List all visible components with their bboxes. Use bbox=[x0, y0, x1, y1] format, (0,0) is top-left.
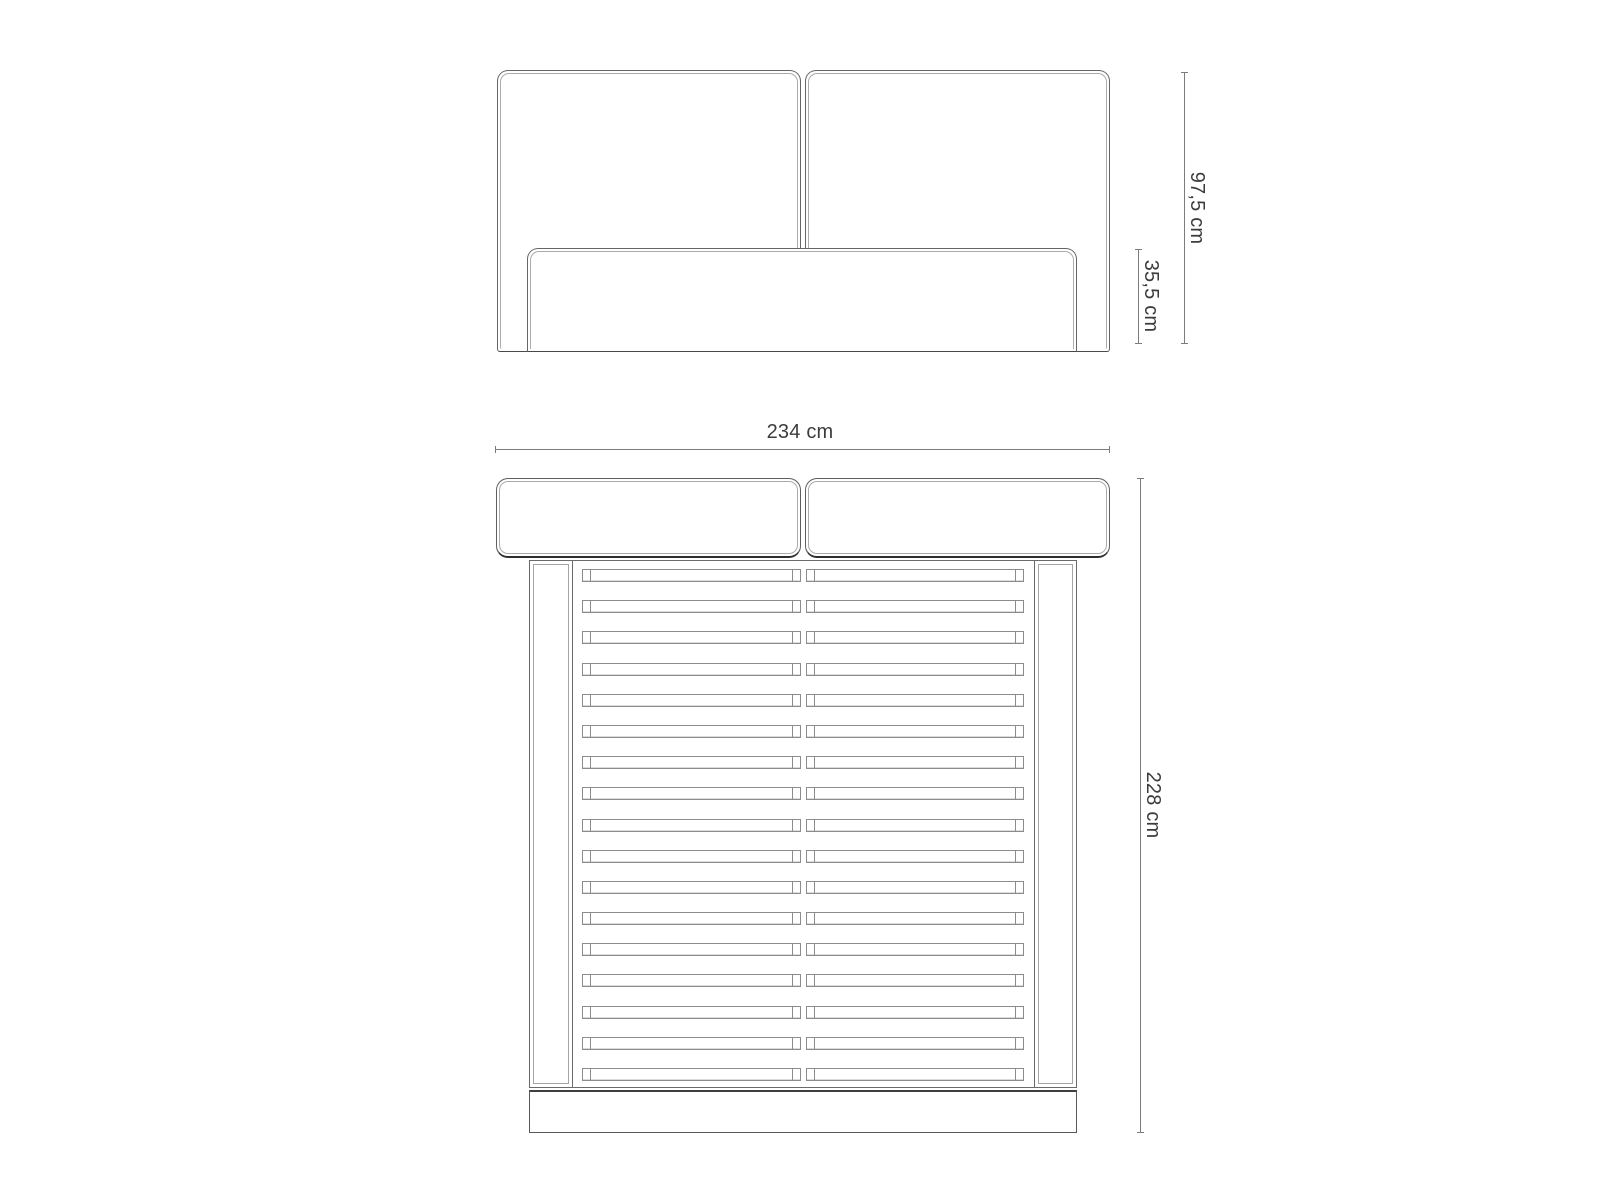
slat-left bbox=[582, 600, 801, 613]
slat-right bbox=[806, 1006, 1025, 1019]
slat-left bbox=[582, 1006, 801, 1019]
slat-left bbox=[582, 819, 801, 832]
slat-row bbox=[582, 787, 1024, 800]
slat-row bbox=[582, 725, 1024, 738]
slat-row bbox=[582, 974, 1024, 987]
slat-right bbox=[806, 787, 1025, 800]
slat-right bbox=[806, 600, 1025, 613]
slat-left bbox=[582, 912, 801, 925]
slat-right bbox=[806, 1068, 1025, 1081]
dimension-line-width bbox=[495, 449, 1110, 450]
slat-left bbox=[582, 943, 801, 956]
slat-row bbox=[582, 694, 1024, 707]
slat-left bbox=[582, 881, 801, 894]
slat-row bbox=[582, 1037, 1024, 1050]
slat-right bbox=[806, 569, 1025, 582]
slat-left bbox=[582, 1037, 801, 1050]
slat-right bbox=[806, 756, 1025, 769]
headboard-cushion-left-seam bbox=[499, 481, 798, 554]
slat-left bbox=[582, 756, 801, 769]
slatted-base bbox=[572, 560, 1035, 1088]
slat-left bbox=[582, 694, 801, 707]
dimension-line-total-height bbox=[1184, 72, 1185, 344]
dimension-line-length bbox=[1140, 478, 1141, 1133]
dimension-label-base-height: 35,5 cm bbox=[1141, 260, 1161, 333]
slat-right bbox=[806, 819, 1025, 832]
slat-row bbox=[582, 850, 1024, 863]
slat-row bbox=[582, 943, 1024, 956]
slat-left bbox=[582, 974, 801, 987]
slat-right bbox=[806, 1037, 1025, 1050]
technical-drawing-canvas: 97,5 cm 35,5 cm 234 cm 228 cm bbox=[0, 0, 1604, 1203]
slat-left bbox=[582, 631, 801, 644]
slat-right bbox=[806, 694, 1025, 707]
slat-row bbox=[582, 912, 1024, 925]
slat-right bbox=[806, 974, 1025, 987]
slat-right bbox=[806, 912, 1025, 925]
slat-left bbox=[582, 787, 801, 800]
slat-right bbox=[806, 943, 1025, 956]
side-rail-right-seam bbox=[1038, 564, 1073, 1084]
slat-left bbox=[582, 725, 801, 738]
foot-rail bbox=[529, 1090, 1077, 1133]
slat-row bbox=[582, 663, 1024, 676]
bed-base-front-panel bbox=[527, 248, 1077, 352]
dimension-label-total-height: 97,5 cm bbox=[1187, 172, 1207, 245]
bed-base-front-seam bbox=[530, 251, 1074, 349]
slat-left bbox=[582, 850, 801, 863]
headboard-cushion-right-seam bbox=[808, 481, 1107, 554]
slat-row bbox=[582, 600, 1024, 613]
headboard-cushion-left bbox=[496, 478, 801, 558]
slat-row bbox=[582, 1006, 1024, 1019]
side-rail-left bbox=[529, 560, 573, 1088]
slat-right bbox=[806, 881, 1025, 894]
slat-right bbox=[806, 725, 1025, 738]
bed-front-elevation: 97,5 cm 35,5 cm bbox=[0, 0, 1604, 400]
slat-right bbox=[806, 631, 1025, 644]
slat-row bbox=[582, 631, 1024, 644]
slat-right bbox=[806, 663, 1025, 676]
slat-left bbox=[582, 1068, 801, 1081]
side-rail-left-seam bbox=[533, 564, 569, 1084]
headboard-cushion-right bbox=[805, 478, 1110, 558]
bed-top-plan-view: 234 cm 228 cm bbox=[0, 400, 1604, 1203]
dimension-label-length: 228 cm bbox=[1143, 772, 1163, 839]
slat-row bbox=[582, 1068, 1024, 1081]
slat-row bbox=[582, 569, 1024, 582]
slat-left bbox=[582, 663, 801, 676]
dimension-label-width: 234 cm bbox=[767, 422, 834, 442]
slat-right bbox=[806, 850, 1025, 863]
slat-row bbox=[582, 756, 1024, 769]
slat-row bbox=[582, 819, 1024, 832]
side-rail-right bbox=[1034, 560, 1077, 1088]
dimension-line-base-height bbox=[1138, 249, 1139, 344]
slat-row bbox=[582, 881, 1024, 894]
slat-left bbox=[582, 569, 801, 582]
